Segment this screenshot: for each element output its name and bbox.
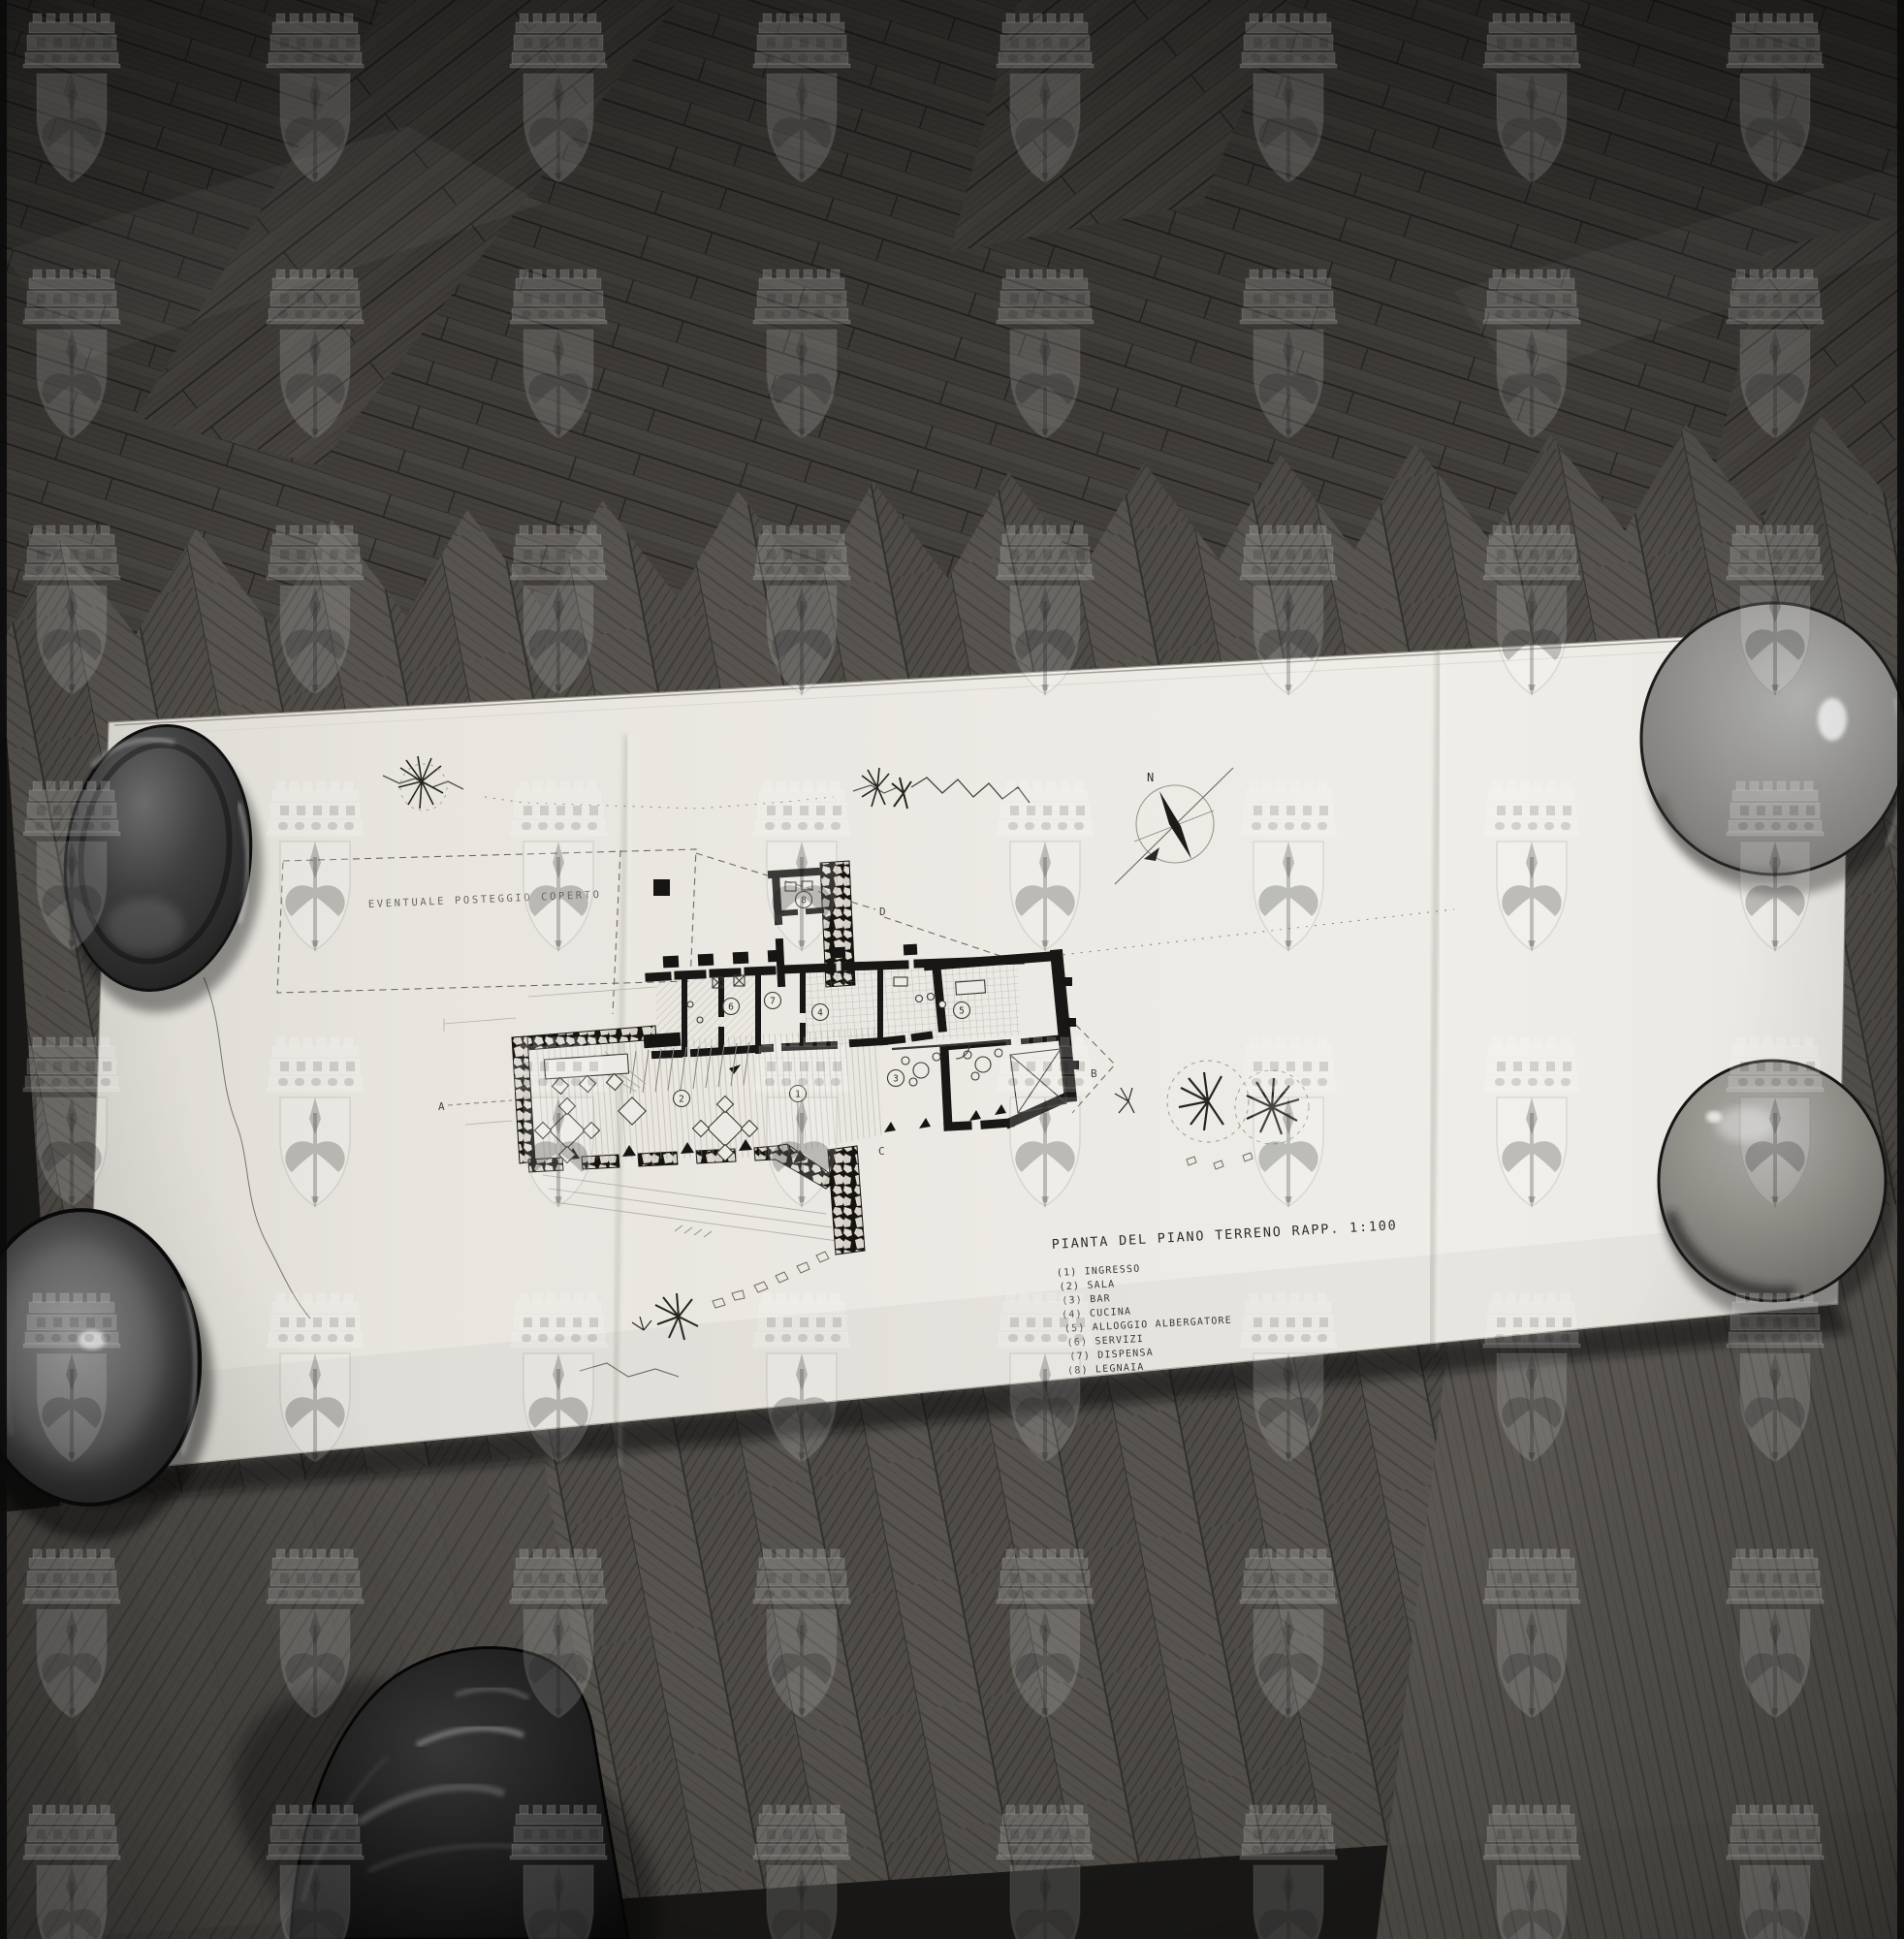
film-edge-right [1897,0,1904,1939]
film-edge-left [0,0,7,1939]
crest-watermark-overlay [0,0,1904,1939]
photo-scene: 1 2 3 4 5 6 7 8 A B C D N EVENTUALE POS [0,0,1904,1939]
